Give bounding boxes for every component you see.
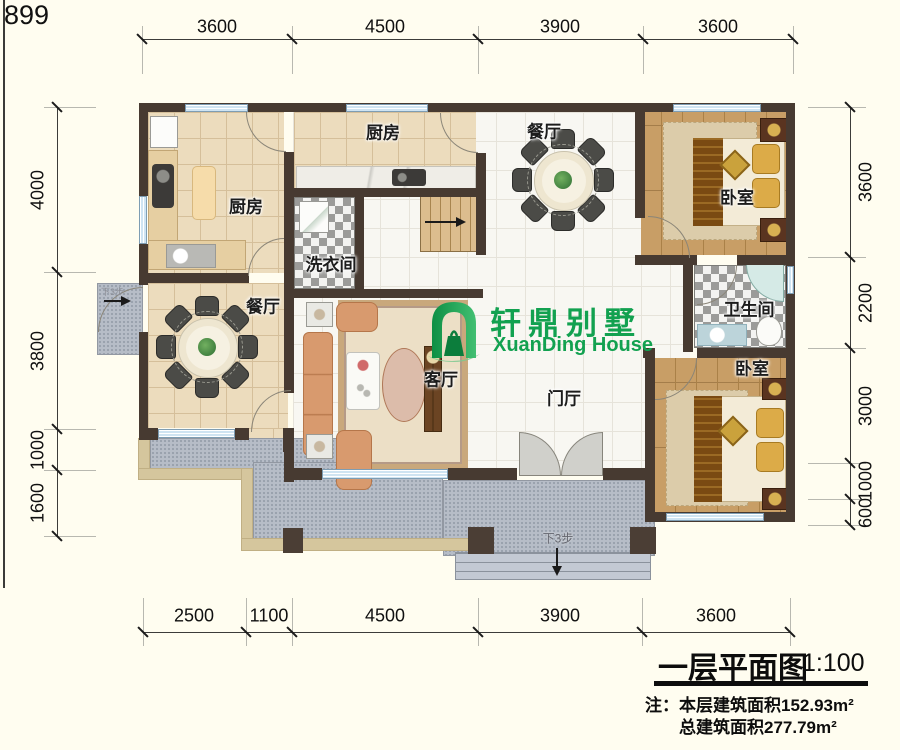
- dim-right-2: 2200: [856, 283, 877, 323]
- ext-line: [642, 598, 643, 646]
- ext-line: [44, 429, 96, 430]
- wall: [355, 188, 364, 298]
- side-table: [306, 302, 333, 327]
- window: [322, 469, 448, 479]
- pillow: [756, 442, 784, 472]
- area-note-line2: 总建筑面积277.79m²: [679, 713, 837, 738]
- room-label-foyer: 门厅: [547, 385, 581, 410]
- dim-left-2: 3800: [28, 331, 49, 371]
- terrace-post: [283, 528, 303, 553]
- page-border-line: [3, 0, 5, 588]
- ext-line: [44, 272, 96, 273]
- bed-blanket: [693, 138, 723, 226]
- ext-line: [793, 26, 794, 74]
- xuanding-logo-icon: [424, 296, 484, 362]
- kitchen-sink: [166, 244, 216, 268]
- room-label-kitchen-left: 厨房: [229, 193, 263, 218]
- wall: [139, 103, 148, 196]
- front-steps-label: 下3步: [543, 530, 574, 547]
- stove: [152, 164, 174, 208]
- plant-centerpiece: [198, 338, 216, 356]
- dim-bottom-2: 1100: [250, 606, 289, 627]
- fridge: [150, 116, 178, 148]
- dim-bottom-4: 3900: [540, 606, 580, 627]
- nightstand: [762, 378, 788, 400]
- ext-line: [292, 598, 293, 646]
- side-steps-arrow-line: [104, 300, 122, 302]
- dim-top-2: 4500: [365, 17, 405, 38]
- dim-top-1: 3600: [197, 17, 237, 38]
- dim-top-3: 3900: [540, 17, 580, 38]
- pillow: [756, 408, 784, 438]
- dim-line-top: [142, 39, 793, 40]
- dim-bottom-3: 4500: [365, 606, 405, 627]
- bed-blanket: [694, 396, 722, 502]
- floor-plan-sheet: 899: [0, 0, 900, 750]
- wall: [603, 468, 655, 480]
- coffee-table: [346, 352, 380, 410]
- pillow: [752, 178, 780, 208]
- wall: [284, 152, 294, 393]
- wall: [448, 468, 517, 480]
- wall: [645, 348, 655, 522]
- window: [139, 196, 147, 244]
- room-label-bathroom: 卫生间: [724, 296, 775, 321]
- corner-number: 899: [4, 0, 49, 31]
- washing-machine: [299, 201, 329, 233]
- nightstand: [760, 118, 788, 142]
- dim-line-bottom: [143, 632, 790, 633]
- ext-line: [44, 536, 96, 537]
- room-label-dining-left: 餐厅: [246, 293, 280, 318]
- dim-left-1: 4000: [28, 170, 49, 210]
- ext-line: [808, 257, 866, 258]
- wall: [139, 428, 158, 440]
- wall: [476, 153, 486, 255]
- side-steps-arrow: [121, 296, 131, 306]
- dim-right-3: 3000: [856, 386, 877, 426]
- terrace-edge-strip: [138, 468, 253, 480]
- wall: [235, 428, 249, 440]
- window: [673, 104, 761, 112]
- window: [158, 429, 235, 438]
- ext-line: [478, 598, 479, 646]
- bathroom-sink: [697, 324, 747, 346]
- logo-name-en: XuanDing House: [493, 334, 653, 357]
- ext-line: [44, 470, 96, 471]
- wall: [737, 255, 795, 265]
- window: [787, 266, 794, 294]
- kitchen-island: [192, 166, 216, 220]
- room-label-bedroom-bottom: 卧室: [735, 355, 769, 380]
- stairs-direction-line: [425, 221, 457, 223]
- ext-line: [143, 598, 144, 646]
- porch-column: [630, 527, 656, 554]
- ext-line: [246, 598, 247, 646]
- dim-bottom-5: 3600: [696, 606, 736, 627]
- rug-medallion: [382, 348, 426, 422]
- dim-left-3: 1000: [28, 430, 49, 470]
- drawing-scale: 1:100: [802, 649, 865, 678]
- dim-right-5: 600: [856, 498, 877, 528]
- title-underline: [654, 681, 868, 686]
- wall: [635, 103, 645, 218]
- room-label-laundry: 洗衣间: [306, 251, 357, 276]
- ext-line: [478, 26, 479, 74]
- dim-right-1: 3600: [856, 162, 877, 202]
- ext-line: [790, 598, 791, 646]
- dim-right-4: 1000: [856, 461, 877, 501]
- stove: [392, 169, 426, 186]
- ext-line: [142, 26, 143, 74]
- dining-set-left: [155, 295, 259, 399]
- ext-line: [808, 107, 866, 108]
- side-table: [306, 434, 333, 459]
- dining-set-top: [511, 128, 615, 232]
- dim-top-4: 3600: [698, 17, 738, 38]
- wall: [139, 273, 249, 283]
- dim-bottom-1: 2500: [174, 606, 214, 627]
- wall: [284, 468, 322, 480]
- room-label-kitchen-top: 厨房: [366, 119, 400, 144]
- ext-line: [44, 107, 96, 108]
- stairs-direction-arrow: [456, 217, 466, 227]
- wall: [786, 103, 795, 522]
- porch-column: [468, 527, 494, 554]
- nightstand: [762, 488, 788, 510]
- ext-line: [643, 26, 644, 74]
- wall: [683, 258, 693, 352]
- nightstand: [760, 218, 788, 242]
- wall: [294, 188, 476, 197]
- kitchen-counter: [296, 166, 476, 189]
- plant-centerpiece: [554, 171, 572, 189]
- toilet: [756, 316, 782, 346]
- front-steps-arrow: [552, 566, 562, 576]
- chaise-chair: [336, 430, 372, 490]
- window: [185, 104, 248, 112]
- room-label-dining-top: 餐厅: [527, 118, 561, 143]
- room-label-living: 客厅: [424, 366, 458, 391]
- dim-left-4: 1600: [28, 483, 49, 523]
- armchair: [336, 302, 378, 332]
- room-label-bedroom-top: 卧室: [720, 184, 754, 209]
- wall: [139, 332, 148, 440]
- window: [346, 104, 428, 112]
- front-steps-arrow-line: [556, 548, 558, 566]
- ext-line: [808, 348, 866, 349]
- pillow: [752, 144, 780, 174]
- window: [666, 513, 764, 521]
- ext-line: [292, 26, 293, 74]
- terrace-edge-strip: [241, 538, 473, 551]
